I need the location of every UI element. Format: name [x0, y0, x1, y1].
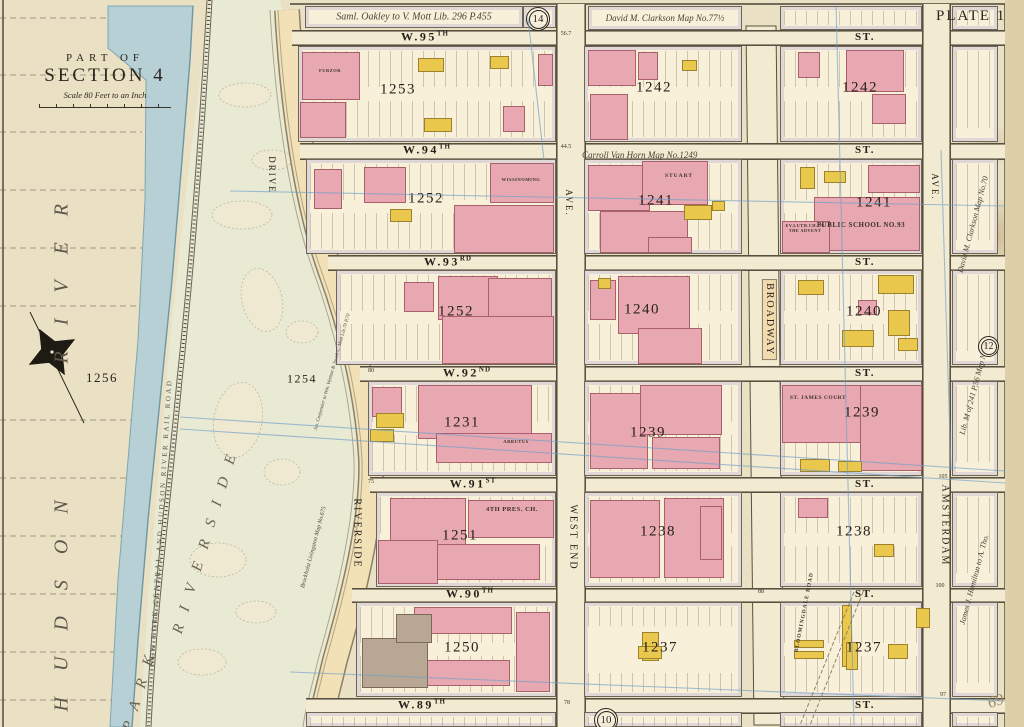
ref-circle-right: 12: [978, 336, 999, 357]
building-brick: [300, 102, 346, 138]
block-1237-west: 1237: [584, 602, 742, 697]
corner-number: 97: [940, 692, 946, 698]
street-suffix: ST.: [855, 367, 875, 379]
railroad-label: NEW YORK CENTRAL AND HUDSON RIVER RAIL R…: [148, 378, 174, 666]
building-brick: [638, 52, 658, 80]
deed-note-clarkson-top: David M. Clarkson Map No.77½: [606, 13, 725, 23]
block-1238-east: 1238: [780, 492, 922, 587]
partial-block-bottom: [780, 712, 922, 727]
block-1241-east: 1241 PUBLIC SCHOOL NO.93 EV.LUTH.CH.OF T…: [780, 159, 922, 254]
partial-block-bottom: [306, 712, 556, 727]
riverside-drive-label-top: DRIVE: [267, 156, 277, 194]
street-label-w92: W.92ND: [443, 366, 491, 381]
building-brick: [588, 50, 636, 86]
deed-box-clarkson: David M. Clarkson Map No.77½: [588, 6, 742, 30]
building-frame: [712, 201, 725, 211]
street-label-w90: W.90TH: [446, 587, 494, 602]
park-block-number-1256: 1256: [86, 370, 118, 386]
building-frame: [888, 644, 908, 659]
block-number: 1237: [846, 640, 882, 657]
ref-number: 12: [984, 341, 994, 352]
building-brick: [648, 237, 692, 253]
street-label-w89: W.89TH: [398, 698, 446, 713]
corner-number: 44.5: [561, 144, 572, 150]
street-label-w94: W.94TH: [403, 143, 451, 158]
scale-label: Scale 80 Feet to an Inch: [20, 90, 190, 100]
corner-number: 88: [758, 589, 764, 595]
building-stone: [396, 614, 432, 643]
block-1238-west: 1238: [584, 492, 742, 587]
corner-number: 80: [368, 368, 374, 374]
building-label-church: EV.LUTH.CH.OF THE ADVENT: [782, 223, 828, 234]
building-brick: [700, 506, 722, 560]
building-frame: [838, 461, 862, 472]
street-suffix: ST.: [855, 478, 875, 490]
block-1252-south: 1252: [336, 270, 556, 365]
building-frame: [390, 209, 412, 222]
building-brick: [490, 163, 554, 203]
street-label-w95: W.95TH: [401, 30, 449, 45]
hudson-river-label-river: RIVER: [51, 178, 74, 364]
block-1253: 1253 FURZOR: [298, 46, 556, 142]
street-suffix: ST.: [855, 588, 875, 600]
note-livingston: Brockholst Livingston Map No.675: [300, 506, 328, 589]
riverside-park-label-riverside: RIVERSIDE: [170, 440, 245, 636]
section-title-block: PART OF SECTION 4 Scale 80 Feet to an In…: [20, 52, 190, 108]
building-stone: [362, 638, 428, 688]
amsterdam-name-label: AMSTERDAM: [939, 485, 950, 567]
block-number: 1242: [842, 80, 878, 97]
corner-number: 100: [936, 583, 945, 589]
building-label-st-james: ST. JAMES COURT: [788, 395, 848, 402]
building-brick: [404, 282, 434, 312]
building-frame: [490, 56, 509, 69]
building-frame: [878, 275, 914, 294]
corner-number: 78: [564, 700, 570, 706]
block-1239-west: 1239: [584, 381, 742, 476]
partial-block-bottom: [952, 712, 998, 727]
block-number: 1239: [630, 425, 666, 442]
building-brick: [516, 612, 550, 692]
broadway-label: BROADWAY: [762, 279, 777, 360]
building-frame: [682, 60, 697, 71]
building-frame: [684, 205, 712, 220]
building-label: FURZOR: [304, 68, 356, 74]
building-label: ARBUTUS: [486, 439, 546, 445]
building-frame: [842, 330, 874, 347]
building-frame: [800, 167, 815, 189]
building-frame: [424, 118, 452, 132]
building-frame: [888, 310, 910, 336]
corner-number: 105: [939, 474, 948, 480]
building-frame: [824, 171, 846, 183]
street-suffix: ST.: [855, 31, 875, 43]
block-1239-east: 1239 ST. JAMES COURT: [780, 381, 922, 476]
note-van-horn: Carroll Van Horn Map No.1249: [582, 150, 697, 160]
west-end-avenue: [556, 4, 586, 727]
block-number: 1251: [442, 528, 478, 545]
riverside-drive-label: RIVERSIDE: [352, 498, 363, 568]
building-frame: [916, 608, 930, 628]
building-brick: [436, 433, 552, 463]
block-1240-east: 1240: [780, 270, 922, 365]
building-frame: [798, 280, 824, 295]
block-1240-west: 1240: [584, 270, 742, 365]
building-label-church: 4TH PRES. CH.: [472, 506, 552, 514]
building-brick: [798, 498, 828, 518]
sheet-margin: [1005, 0, 1024, 727]
part-of-label: PART OF: [20, 52, 190, 64]
building-brick: [652, 437, 720, 469]
building-brick: [860, 385, 922, 471]
building-brick: [442, 316, 554, 364]
building-brick: [364, 167, 406, 203]
block-number: 1239: [844, 405, 880, 422]
block-number: 1250: [444, 640, 480, 657]
west-end-name-label: WEST END: [568, 504, 579, 570]
block-number: 1240: [624, 302, 660, 319]
building-label: STUART: [650, 173, 708, 180]
block-number: 1241: [638, 193, 674, 210]
corner-number: 75: [368, 479, 374, 485]
block-1237-east: 1237 BLOOMINGDALE ROAD: [780, 602, 922, 697]
block-1252-north: 1252 WISSINOMING: [306, 159, 556, 254]
block-number: 1231: [444, 415, 480, 432]
block-1242-west: 1242: [584, 46, 742, 142]
building-brick: [590, 94, 628, 140]
building-brick: [503, 106, 525, 132]
ref-circle-top: 14: [526, 7, 550, 31]
scale-bar: [39, 104, 171, 108]
block-number: 1238: [640, 524, 676, 541]
corner-number: 56.7: [561, 31, 572, 37]
hudson-river-label-hudson: HUDSON: [51, 474, 74, 711]
building-frame: [418, 58, 444, 72]
section-label: SECTION 4: [20, 65, 190, 87]
amsterdam-ave-label: AVE.: [930, 173, 940, 201]
building-frame: [874, 544, 894, 557]
building-brick: [868, 165, 920, 193]
west-end-ave-label: AVE.: [564, 189, 574, 217]
street-label-w93: W.93RD: [424, 255, 472, 270]
building-brick: [538, 54, 553, 86]
street-w95: [292, 30, 1005, 46]
street-suffix: ST.: [855, 144, 875, 156]
deed-note-oakley: Saml. Oakley to V. Mott Lib. 296 P.455: [336, 12, 491, 23]
note-carpentier: Jas. Carpentier to Wm. Wyman & Jacob C. …: [314, 313, 352, 431]
block-number: 1253: [380, 82, 416, 99]
block-1242-east: 1242: [780, 46, 922, 142]
ref-circle-bottom: 10: [594, 708, 618, 727]
street-suffix: ST.: [855, 699, 875, 711]
street-label-w91: W.91ST: [450, 477, 496, 492]
block-number: 1252: [408, 191, 444, 208]
ref-number: 14: [533, 13, 544, 25]
building-brick: [454, 205, 554, 253]
block-number: 1241: [856, 195, 892, 212]
atlas-map-sheet: Saml. Oakley to V. Mott Lib. 296 P.455 D…: [0, 0, 1024, 727]
block-number: 1252: [438, 304, 474, 321]
block-number: 1237: [642, 640, 678, 657]
ref-number: 10: [601, 714, 612, 726]
block-1231: 1231 ARBUTUS: [368, 381, 556, 476]
block-number: 1238: [836, 524, 872, 541]
building-frame: [800, 459, 830, 472]
building-brick: [798, 52, 820, 78]
block-1241-west: 1241 STUART: [584, 159, 742, 254]
block-1251: 1251 4TH PRES. CH.: [376, 492, 556, 587]
building-brick: [378, 540, 438, 584]
building-brick: [302, 52, 360, 100]
building-brick: [314, 169, 342, 209]
building-brick: [638, 328, 702, 364]
partial-block-top-east: [780, 6, 922, 30]
street-suffix: ST.: [855, 256, 875, 268]
sliver-block: [952, 46, 998, 142]
building-frame: [376, 413, 404, 428]
building-frame: [898, 338, 918, 351]
park-block-number-1254: 1254: [287, 372, 317, 387]
deed-box-oakley: Saml. Oakley to V. Mott Lib. 296 P.455: [305, 6, 523, 28]
block-number: 1242: [636, 80, 672, 97]
building-brick: [872, 94, 906, 124]
building-frame: [370, 429, 394, 442]
block-number: 1240: [846, 304, 882, 321]
building-label: WISSINOMING: [490, 177, 552, 183]
building-frame: [598, 278, 611, 289]
map-content: Saml. Oakley to V. Mott Lib. 296 P.455 D…: [0, 0, 1024, 727]
block-1250: 1250: [356, 602, 556, 697]
